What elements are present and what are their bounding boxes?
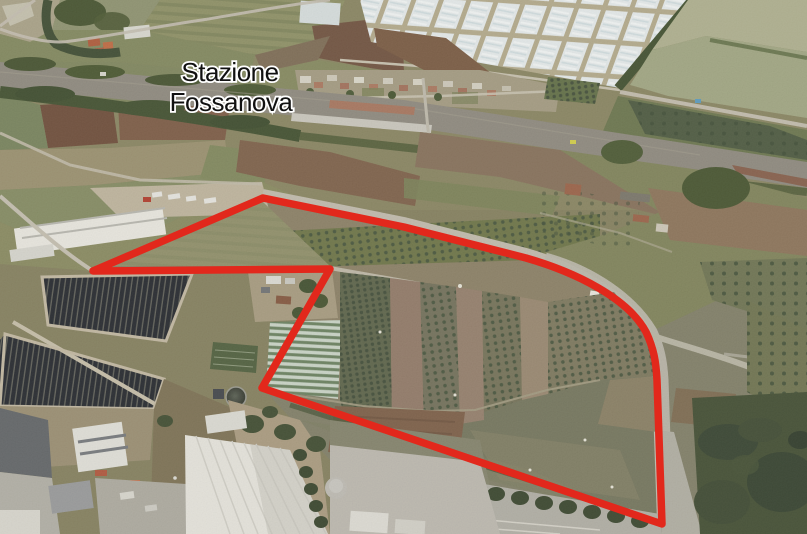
svg-text:Stazione: Stazione [181, 57, 278, 87]
svg-text:Fossanova: Fossanova [170, 87, 294, 117]
